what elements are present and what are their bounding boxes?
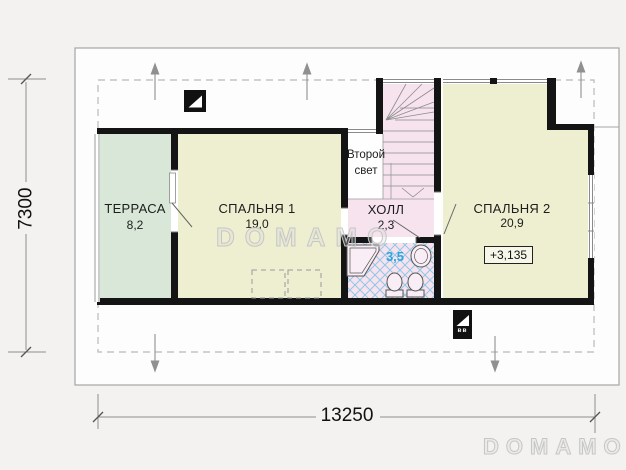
window-bedroom2-right bbox=[497, 78, 547, 84]
brand-logo: DOMAMO bbox=[483, 434, 626, 460]
terrace-area: 8,2 bbox=[100, 219, 170, 232]
vent-shaft-icon bbox=[453, 310, 472, 339]
bidet bbox=[407, 273, 424, 297]
terrace-label: ТЕРРАСА bbox=[100, 202, 170, 217]
window-stairwell bbox=[383, 78, 434, 84]
dimension-height: 7300 bbox=[15, 179, 36, 239]
window-bedroom2-left bbox=[443, 78, 490, 84]
vent-shaft-label: вв bbox=[453, 327, 472, 334]
second-light-label-line2: свет bbox=[336, 165, 396, 178]
chimney-vent-icon bbox=[184, 90, 206, 112]
bedroom2-label: СПАЛЬНЯ 2 bbox=[458, 202, 566, 217]
bedroom1-label: СПАЛЬНЯ 1 bbox=[203, 202, 311, 217]
bedroom2-area: 20,9 bbox=[458, 217, 566, 230]
sink bbox=[411, 245, 431, 267]
terrace-railing bbox=[94, 134, 100, 302]
second-light-label-line1: Второй bbox=[336, 149, 396, 162]
window-second-light bbox=[348, 128, 376, 134]
toilet bbox=[386, 273, 403, 297]
watermark-center: DOMAMO bbox=[216, 222, 397, 253]
level-mark: +3,135 bbox=[484, 246, 533, 264]
floor-plan: ТЕРРАСА 8,2 СПАЛЬНЯ 1 19,0 Второй свет Х… bbox=[0, 0, 626, 470]
door-bedroom2 bbox=[434, 192, 441, 235]
hall-label: ХОЛЛ bbox=[355, 203, 417, 218]
window-bedroom2-side bbox=[588, 175, 594, 258]
dimension-width: 13250 bbox=[310, 405, 384, 426]
